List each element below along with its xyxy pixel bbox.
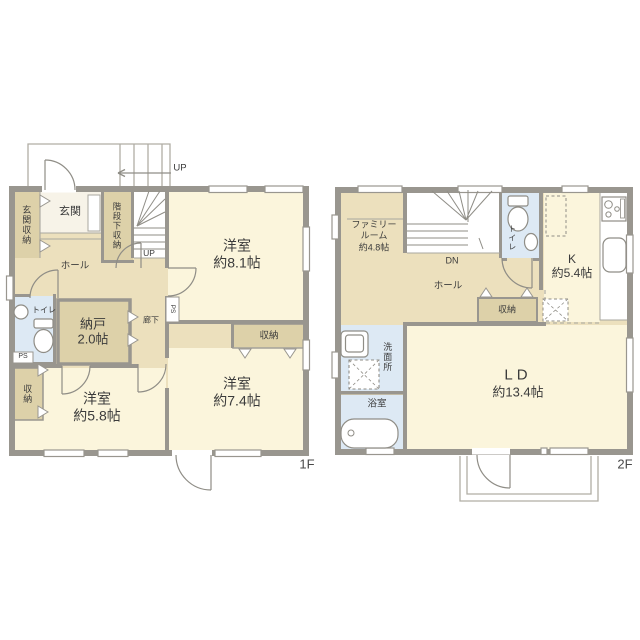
label-stairs-dn: DN: [446, 256, 459, 267]
kitchen-hatch-space: [543, 299, 568, 321]
garden-door-opening: [172, 450, 212, 457]
kitchen-size: 約5.4帖: [552, 266, 593, 280]
stairs-2f-floor: [407, 190, 500, 253]
label-stairs-up-1f: UP: [143, 248, 155, 258]
label-floor-2f: 2F: [617, 456, 632, 471]
label-toilet-2f: トイレ: [507, 225, 516, 252]
label-yokushitsu: 浴室: [367, 398, 386, 409]
label-shuno-left: 収納: [22, 384, 33, 404]
washbasin-fixture: [341, 331, 368, 357]
washer-space: [349, 360, 379, 389]
floorplan-canvas: 玄関収納 玄関 階段下収納 UP UP 洋室 約8.1帖 ホール トイレ 納戸 …: [0, 0, 640, 640]
label-toilet-1f: トイレ: [32, 305, 56, 314]
label-genkan-shuno: 玄関収納: [21, 205, 32, 245]
label-genkan: 玄関: [59, 206, 81, 219]
label-room58: 洋室 約5.8帖: [73, 390, 120, 423]
room58-size: 約5.8帖: [73, 407, 120, 424]
ld-size: 約13.4帖: [492, 384, 543, 399]
label-roka: 廊下: [143, 315, 159, 324]
label-floor-1f: 1F: [299, 456, 314, 471]
shoe-cabinet: [88, 195, 100, 231]
label-kitchen: K 約5.4帖: [552, 252, 593, 280]
bath-fixture: [341, 419, 398, 448]
room81-size: 約8.1帖: [213, 254, 260, 271]
label-kaidan-shita-shuno: 階段下収納: [112, 202, 122, 250]
room74-size: 約7.4帖: [213, 392, 260, 409]
stove-fixture: [602, 197, 626, 221]
label-senmenjo: 洗面所: [382, 342, 393, 372]
label-porch-up: UP: [173, 162, 186, 173]
label-room74: 洋室 約7.4帖: [213, 375, 260, 408]
balcony-door-opening: [472, 448, 510, 455]
family-room-size: 約4.8帖: [348, 242, 400, 253]
porch-outline: [28, 144, 171, 190]
family-room-name: ファミリールーム: [348, 219, 400, 242]
label-hall-1f: ホール: [61, 260, 90, 271]
label-room81: 洋室 約8.1帖: [213, 237, 260, 270]
label-shuno-2f: 収納: [498, 305, 516, 316]
room81-name: 洋室: [213, 237, 260, 254]
room74-name: 洋室: [213, 375, 260, 392]
label-hall-2f: ホール: [434, 280, 463, 291]
label-family-room: ファミリールーム 約4.8帖: [348, 219, 400, 252]
nando-name: 納戸: [77, 317, 108, 332]
label-ps-bottom: PS: [18, 353, 27, 361]
kitchen-name: K: [552, 252, 593, 266]
room58-name: 洋室: [73, 390, 120, 407]
label-shuno-74: 収納: [259, 330, 278, 341]
label-ld: LD 約13.4帖: [492, 366, 543, 399]
nando-size: 2.0帖: [77, 332, 108, 347]
balcony-outline: [460, 456, 598, 501]
label-ps-top: PS: [168, 305, 176, 314]
entrance-opening: [42, 186, 76, 193]
ld-name: LD: [492, 366, 543, 384]
label-nando: 納戸 2.0帖: [77, 317, 108, 348]
kitchen-sink-fixture: [603, 238, 626, 272]
